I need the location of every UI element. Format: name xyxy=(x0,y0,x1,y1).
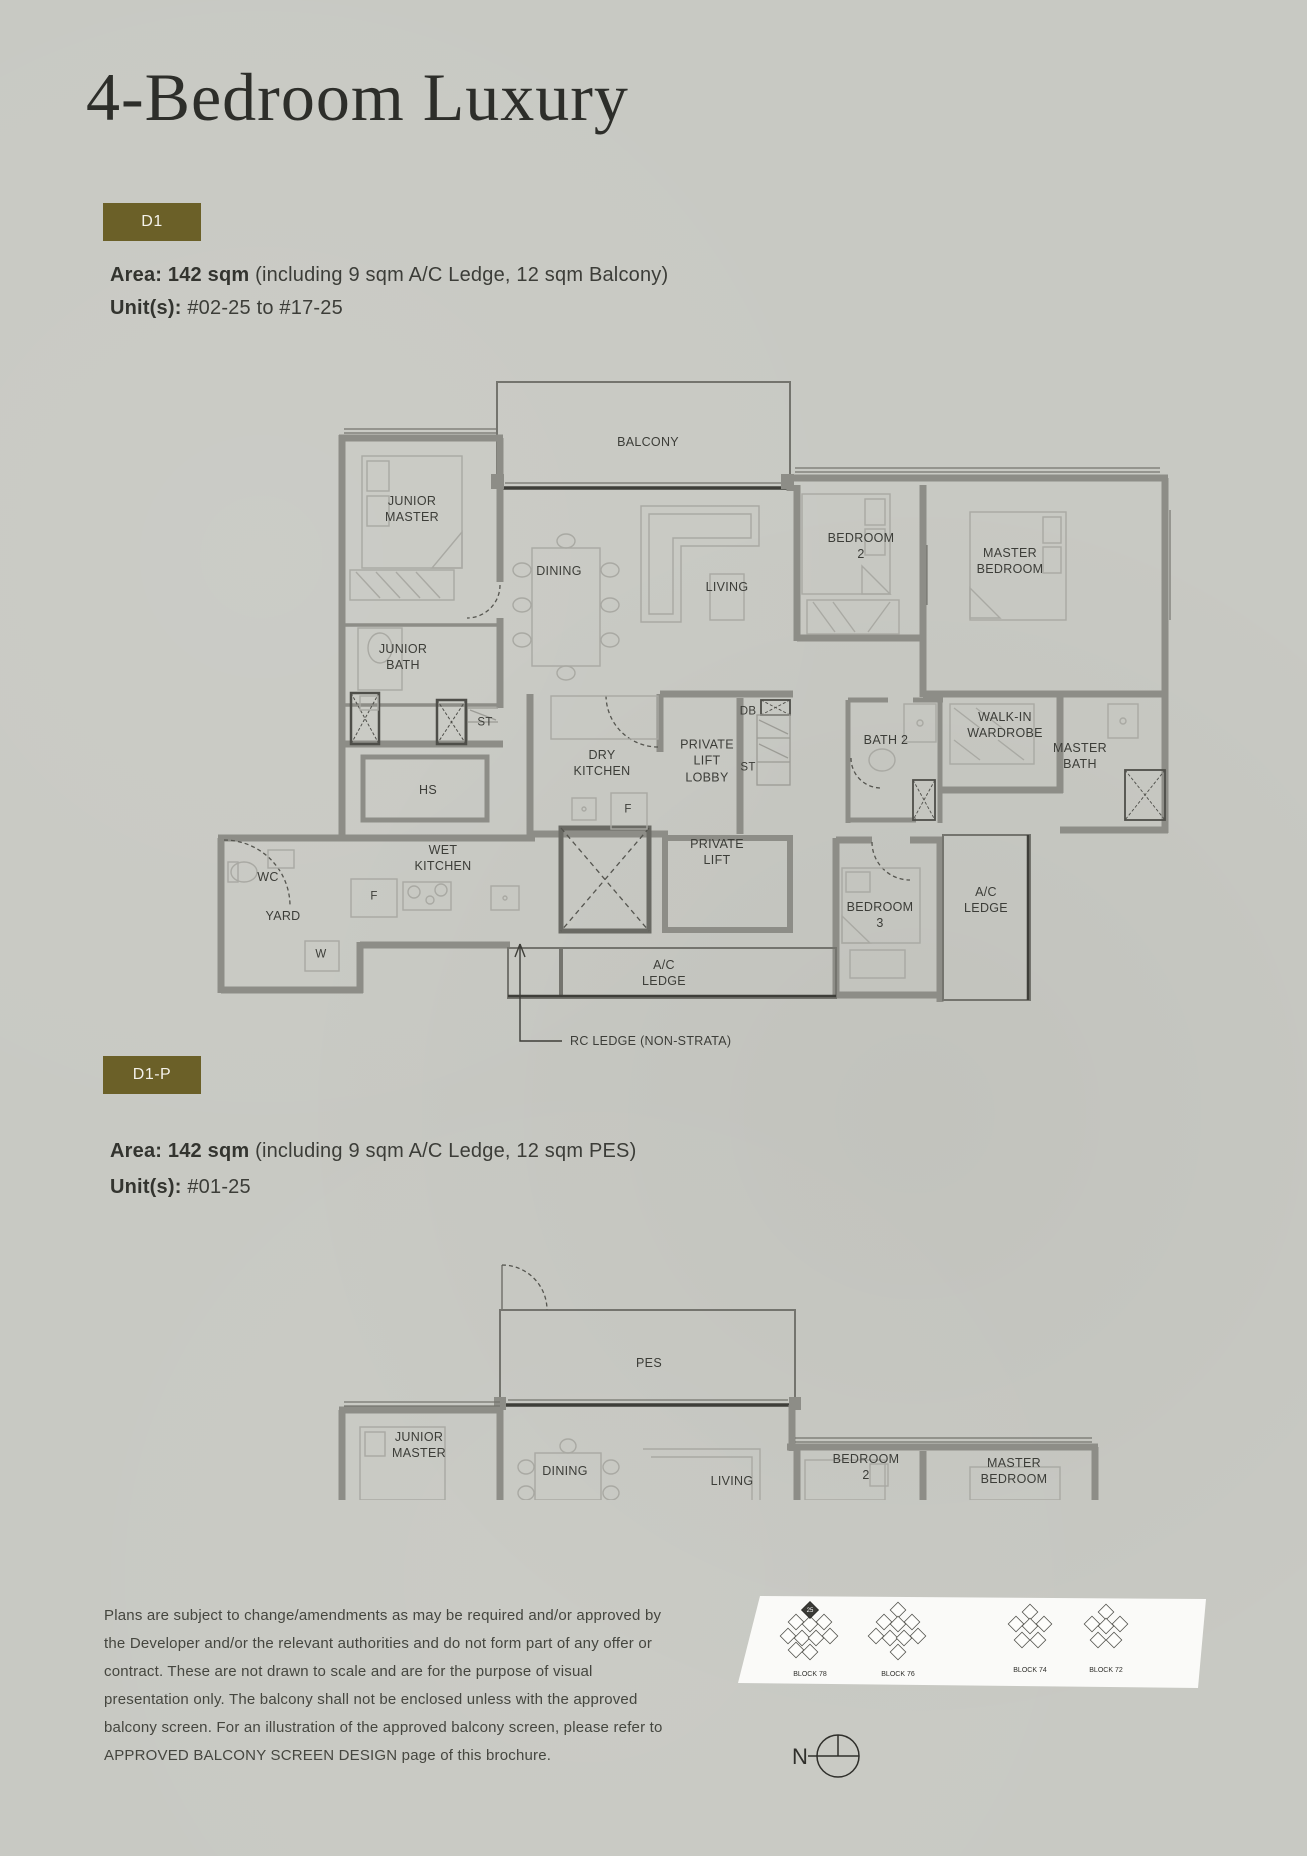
north-label: N xyxy=(792,1744,808,1769)
d1p-area-detail: (including 9 sqm A/C Ledge, 12 sqm PES) xyxy=(249,1140,636,1162)
room-label-bedroom2: BEDROOM 2 xyxy=(828,530,895,563)
d1-area-line: Area: 142 sqm (including 9 sqm A/C Ledge… xyxy=(110,264,668,287)
room-label-ac-ledge-right: A/C LEDGE xyxy=(964,884,1008,917)
d1-area-value: Area: 142 sqm xyxy=(110,264,249,286)
d1-area-detail: (including 9 sqm A/C Ledge, 12 sqm Balco… xyxy=(249,264,668,286)
block-72-label: BLOCK 72 xyxy=(1089,1667,1123,1674)
room-label-private-lift-lobby: PRIVATE LIFT LOBBY xyxy=(680,737,734,786)
room-label-db: DB xyxy=(740,705,757,720)
room-label-dry-kitchen: DRY KITCHEN xyxy=(574,747,631,780)
d1p-units-value: #01-25 xyxy=(182,1176,251,1198)
room-label-fridge2: F xyxy=(370,890,377,905)
room-label-d1p-junior-master: JUNIOR MASTER xyxy=(392,1429,446,1462)
d1p-units-line: Unit(s): #01-25 xyxy=(110,1176,251,1199)
room-label-rc-ledge: RC LEDGE (NON-STRATA) xyxy=(570,1033,731,1049)
room-label-walk-in-wardrobe: WALK-IN WARDROBE xyxy=(967,709,1043,742)
room-label-living: LIVING xyxy=(706,579,749,595)
room-label-bath2: BATH 2 xyxy=(864,732,909,748)
room-label-st2: ST xyxy=(740,761,755,776)
room-label-dining: DINING xyxy=(536,563,582,579)
room-label-master-bath: MASTER BATH xyxy=(1053,740,1107,773)
site-key-plan: 25 xyxy=(738,1596,1208,1692)
room-label-yard: YARD xyxy=(265,908,300,924)
room-label-washer: W xyxy=(315,948,326,963)
room-label-st1: ST xyxy=(477,716,492,731)
block-74-label: BLOCK 74 xyxy=(1013,1667,1047,1674)
floor-plan-d1-drawing xyxy=(210,360,1190,1060)
room-label-wc: WC xyxy=(257,869,278,885)
d1-units-value: #02-25 to #17-25 xyxy=(182,297,343,319)
room-label-junior-bath: JUNIOR BATH xyxy=(379,641,427,674)
room-label-junior-master: JUNIOR MASTER xyxy=(385,493,439,526)
room-label-d1p-living: LIVING xyxy=(711,1473,754,1489)
room-label-private-lift: PRIVATE LIFT xyxy=(690,836,744,869)
room-label-d1p-bedroom2: BEDROOM 2 xyxy=(833,1451,900,1484)
room-label-balcony: BALCONY xyxy=(617,434,679,450)
brochure-page: 4-Bedroom Luxury D1 Area: 142 sqm (inclu… xyxy=(0,0,1307,1856)
floor-plan-d1: BALCONY JUNIOR MASTER DINING LIVING BEDR… xyxy=(210,360,1190,1060)
room-label-hs: HS xyxy=(419,782,437,798)
room-label-d1p-master-bedroom: MASTER BEDROOM xyxy=(981,1455,1048,1488)
room-label-ac-ledge-bottom: A/C LEDGE xyxy=(642,957,686,990)
highlighted-unit-number: 25 xyxy=(807,1608,814,1614)
d1-units-label: Unit(s): xyxy=(110,297,182,319)
room-label-fridge1: F xyxy=(624,803,631,818)
disclaimer-text: Plans are subject to change/amendments a… xyxy=(104,1602,744,1770)
d1p-units-label: Unit(s): xyxy=(110,1176,182,1198)
d1p-area-line: Area: 142 sqm (including 9 sqm A/C Ledge… xyxy=(110,1140,636,1163)
d1-units-line: Unit(s): #02-25 to #17-25 xyxy=(110,297,343,320)
room-label-wet-kitchen: WET KITCHEN xyxy=(415,842,472,875)
room-label-bedroom3: BEDROOM 3 xyxy=(847,899,914,932)
room-label-master-bedroom: MASTER BEDROOM xyxy=(977,545,1044,578)
unit-type-badge-d1: D1 xyxy=(103,203,201,241)
d1p-area-value: Area: 142 sqm xyxy=(110,1140,249,1162)
room-label-d1p-dining: DINING xyxy=(542,1463,588,1479)
block-78-label: BLOCK 78 xyxy=(793,1671,827,1678)
room-label-pes: PES xyxy=(636,1355,662,1371)
page-title: 4-Bedroom Luxury xyxy=(86,58,629,137)
north-compass: N xyxy=(770,1712,890,1796)
floor-plan-d1p: PES JUNIOR MASTER DINING LIVING BEDROOM … xyxy=(330,1255,1110,1500)
block-76-label: BLOCK 76 xyxy=(881,1671,915,1678)
unit-type-badge-d1p: D1-P xyxy=(103,1056,201,1094)
